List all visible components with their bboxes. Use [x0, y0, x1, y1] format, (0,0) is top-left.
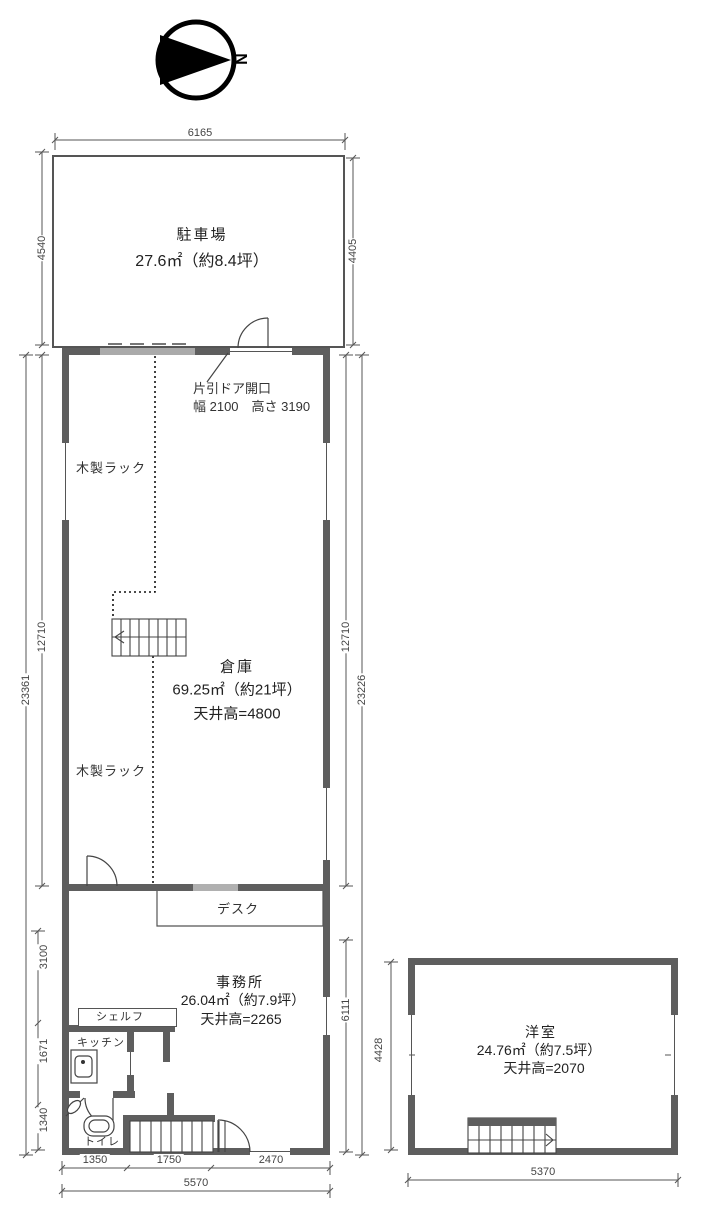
warehouse-window-right-upper	[323, 443, 330, 520]
office-area: 26.04㎡（約7.9坪）	[181, 990, 306, 1010]
parking-area: 27.6㎡（約8.4坪）	[135, 247, 268, 271]
western-window-left	[408, 1015, 415, 1095]
western-name: 洋室	[525, 1022, 557, 1042]
dim-warehouse-right: 12710	[339, 621, 353, 654]
toilet-label: トイレ	[84, 1133, 120, 1149]
dim-parking-left: 4540	[35, 235, 49, 261]
dim-right-total: 23226	[355, 674, 369, 707]
desk-wall-opening	[193, 884, 238, 891]
toilet-wall-right	[113, 1091, 135, 1098]
dim-bottom-a: 1350	[80, 1154, 110, 1166]
dim-bottom-total: 5570	[181, 1177, 211, 1189]
dim-warehouse-left: 12710	[35, 621, 49, 654]
door-note-line2: 幅 2100 高さ 3190	[193, 396, 310, 415]
western-area: 24.76㎡（約7.5坪）	[477, 1040, 602, 1060]
shelf-label: シェルフ	[96, 1008, 144, 1024]
warehouse-ceiling: 天井高=4800	[193, 703, 280, 724]
dim-western-left: 4428	[372, 1037, 386, 1063]
western-window-right	[671, 1015, 678, 1095]
dim-office-left-c: 1340	[37, 1107, 51, 1133]
floor-plan: N 駐車場 27.6㎡（約8.4坪） 倉庫 69.25㎡（約21坪） 天井高=4…	[0, 0, 708, 1208]
dim-bottom-b: 1750	[154, 1154, 184, 1166]
corridor-wall	[163, 1032, 170, 1062]
parking-name: 駐車場	[176, 224, 227, 245]
western-ceiling: 天井高=2070	[503, 1058, 584, 1078]
office-window-right	[323, 997, 330, 1035]
compass-north-label: N	[231, 53, 249, 65]
warehouse-window-left	[62, 443, 69, 520]
stairs-left-wall	[123, 1115, 130, 1155]
dim-top-width: 6165	[185, 127, 215, 139]
warehouse-area: 69.25㎡（約21坪）	[172, 679, 301, 700]
sliding-door-opening	[230, 348, 292, 355]
dim-parking-right: 4405	[346, 238, 360, 264]
warehouse-window-right-lower	[323, 788, 330, 860]
stairs-top-wall	[123, 1115, 215, 1122]
dim-office-right: 6111	[339, 998, 353, 1023]
toilet-wall-left	[62, 1091, 80, 1098]
rack-label-upper: 木製ラック	[76, 458, 146, 477]
corridor-stub-wall	[167, 1093, 174, 1117]
dim-western-bottom: 5370	[528, 1166, 558, 1178]
kitchen-door-opening	[127, 1052, 134, 1075]
sliding-door-panel	[100, 348, 195, 355]
kitchen-label: キッチン	[77, 1034, 125, 1050]
desk-label: デスク	[217, 899, 259, 918]
dim-office-left-a: 3100	[37, 944, 51, 970]
rack-label-lower: 木製ラック	[76, 761, 146, 780]
office-name: 事務所	[216, 972, 264, 992]
dim-office-left-b: 1671	[37, 1038, 51, 1064]
dim-bottom-c: 2470	[256, 1154, 286, 1166]
dim-left-total: 23361	[19, 674, 33, 707]
door-note-line1: 片引ドア開口	[193, 378, 271, 397]
warehouse-name: 倉庫	[220, 656, 254, 677]
office-ceiling: 天井高=2265	[200, 1009, 281, 1029]
compass-icon	[158, 22, 234, 98]
